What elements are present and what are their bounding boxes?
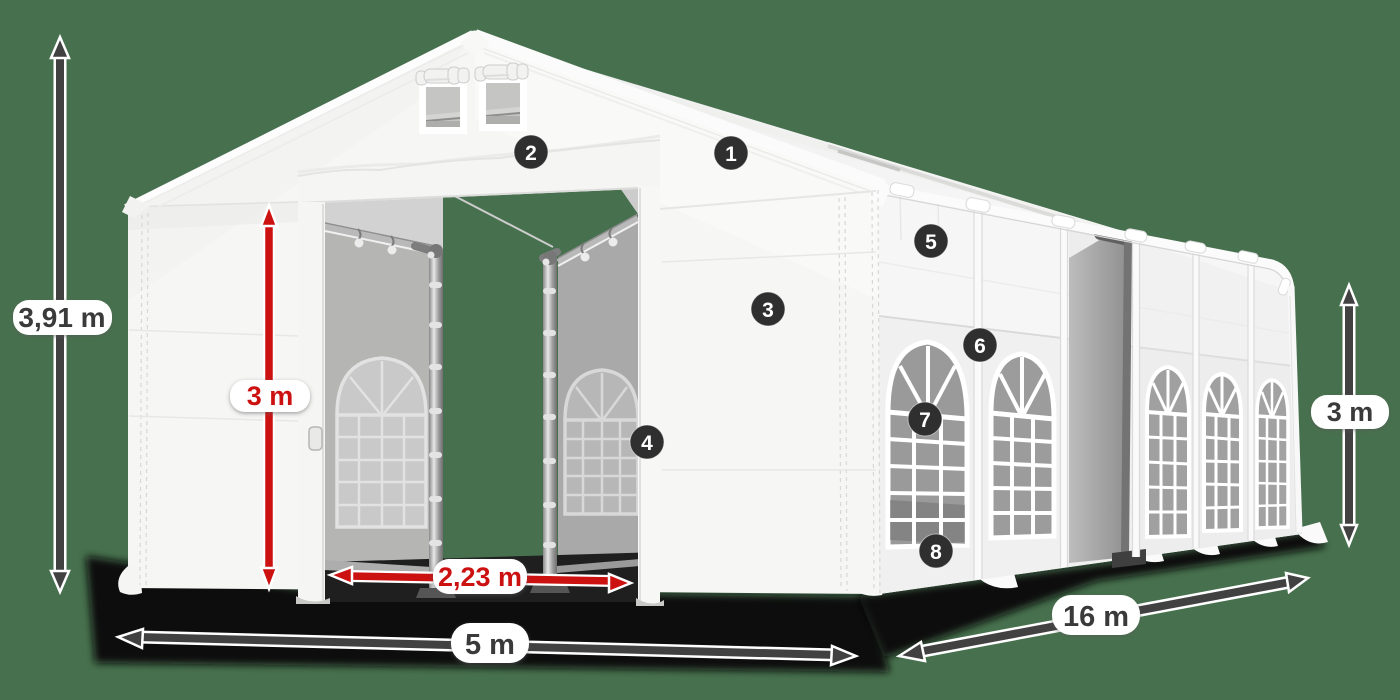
svg-text:5 m: 5 m — [465, 629, 515, 661]
svg-text:16 m: 16 m — [1063, 601, 1129, 633]
svg-text:2,23 m: 2,23 m — [438, 562, 522, 592]
svg-text:5: 5 — [925, 231, 937, 254]
svg-text:1: 1 — [725, 143, 737, 166]
svg-text:3: 3 — [762, 299, 774, 322]
svg-text:6: 6 — [974, 335, 986, 358]
svg-text:2: 2 — [525, 142, 537, 165]
svg-text:8: 8 — [930, 541, 942, 564]
svg-text:4: 4 — [641, 432, 653, 455]
svg-text:3,91 m: 3,91 m — [18, 302, 105, 333]
svg-text:3 m: 3 m — [1327, 397, 1374, 427]
svg-text:3 m: 3 m — [247, 381, 294, 411]
svg-text:7: 7 — [919, 409, 931, 432]
